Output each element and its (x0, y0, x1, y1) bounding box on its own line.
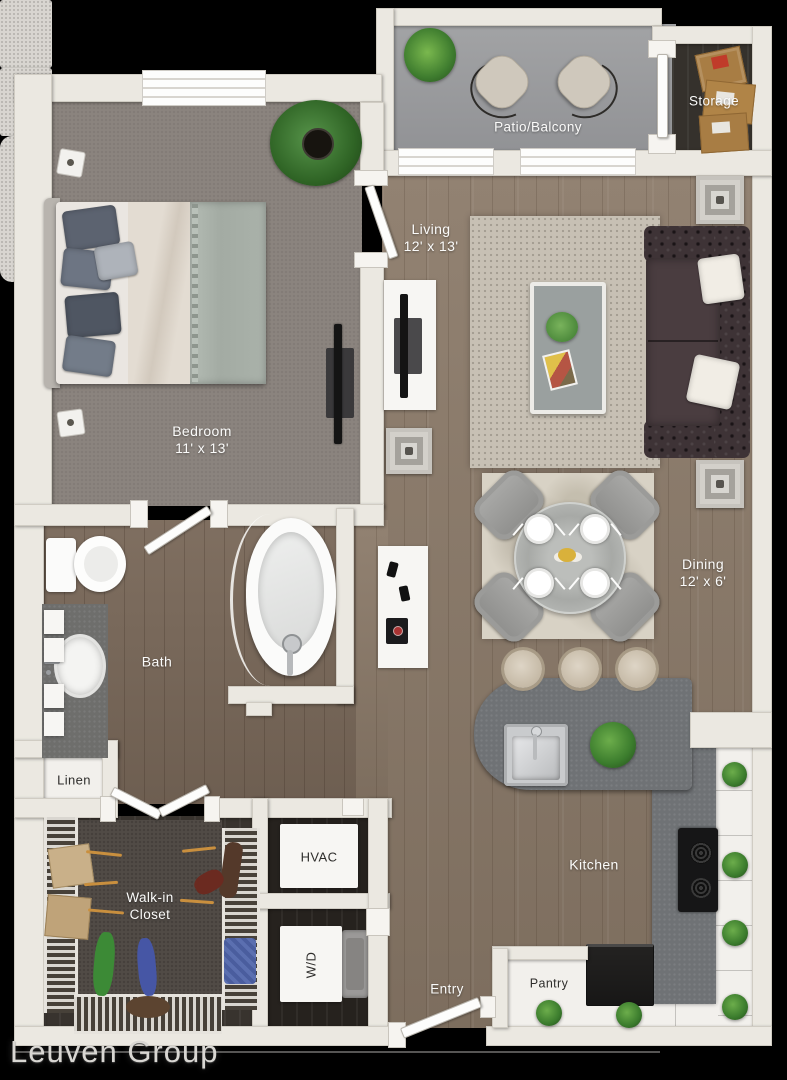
bedroom-door-jamb-bottom (354, 252, 388, 268)
nightstand-bottom-lamp-finial (67, 419, 74, 426)
vanity-drawer-1 (44, 610, 64, 634)
bed-pillow-3 (93, 241, 138, 281)
walkin-door-jamb-left (100, 796, 116, 822)
bed-sheet (128, 202, 192, 384)
bed-pillow-4 (64, 292, 121, 339)
sofa-seat-seam (648, 340, 718, 342)
patio-plant (404, 28, 456, 82)
vanity-drawer-3 (44, 684, 64, 708)
counter-plant-6 (722, 994, 748, 1020)
room-label-storage: Storage (689, 93, 739, 110)
room-label-living-name: Living (404, 221, 459, 238)
bedroom-window (142, 70, 266, 106)
counter-plant-5 (616, 1002, 642, 1028)
console-table (378, 546, 428, 668)
floor-plan: Patio/Balcony Storage Living 12' x 13' B… (0, 0, 787, 1080)
toilet-seat (84, 546, 118, 582)
counter-plant-1 (722, 762, 747, 787)
wall-kitchen-stub (690, 712, 772, 748)
storage-door (657, 54, 668, 138)
toilet-tank (46, 538, 76, 592)
console-item-3-detail (393, 626, 403, 636)
bar-stool-3 (618, 650, 656, 688)
refrigerator (586, 944, 654, 1006)
bath-door-jamb-right (210, 500, 228, 528)
storage-box-3-label (712, 121, 731, 133)
walkin-door-jamb-right (204, 796, 220, 822)
room-label-living: Living 12' x 13' (404, 221, 459, 255)
bed-pillow-5 (62, 335, 117, 378)
bedroom-door-jamb-top (354, 170, 388, 186)
counter-white-right (716, 746, 752, 1028)
wall-bottom-b (486, 1026, 772, 1046)
bedroom-plant-pot (302, 128, 334, 160)
room-label-living-dims: 12' x 13' (404, 238, 459, 255)
dining-plate-3 (524, 568, 554, 598)
room-label-entry: Entry (430, 981, 464, 998)
wall-left-lower (14, 520, 44, 1046)
washer-lid (346, 938, 364, 990)
side-table-top (696, 176, 744, 224)
room-label-pantry: Pantry (530, 976, 569, 993)
room-label-walkin: Walk-in Closet (126, 889, 173, 923)
vanity-drawer-2 (44, 638, 64, 662)
counter-plant-3 (722, 920, 748, 946)
stove-burner-2 (691, 878, 711, 898)
counter-plant-4 (536, 1000, 562, 1026)
room-label-bedroom-name: Bedroom (172, 423, 232, 440)
watermark-line (14, 1051, 660, 1053)
sofa-pillow-1 (697, 253, 745, 304)
bar-stool-1 (504, 650, 542, 688)
bed-duvet-buttons (192, 204, 198, 382)
wall-tub-right (336, 508, 354, 704)
room-label-patio: Patio/Balcony (494, 119, 582, 136)
wall-bedroom-right-b (360, 256, 384, 508)
closet-shirt (224, 938, 256, 984)
counter-plant-2 (722, 852, 748, 878)
room-label-linen: Linen (57, 772, 91, 789)
closet-bag (126, 996, 170, 1018)
wall-patio-top (376, 8, 662, 26)
wd-door-frame (366, 908, 390, 936)
room-label-kitchen: Kitchen (569, 857, 619, 874)
room-label-dining: Dining 12' x 6' (680, 556, 727, 590)
room-label-wd: W/D (303, 952, 320, 978)
patio-slider-right (520, 148, 636, 176)
hvac-door-frame (342, 798, 364, 816)
closet-box-2 (44, 894, 91, 940)
wall-walkin-top-a (14, 798, 106, 818)
room-label-bath: Bath (142, 654, 172, 671)
vanity-drawer-4 (44, 712, 64, 736)
living-tv-mount (394, 318, 422, 374)
side-table-tv (386, 428, 432, 474)
bath-faucet-knob-2 (46, 670, 51, 675)
entry-door-jamb-right (480, 996, 496, 1018)
dining-centerpiece (558, 548, 576, 562)
stove (678, 828, 718, 912)
coffee-table-plant (546, 312, 578, 342)
wall-bedroom-bottom-a (14, 504, 140, 526)
living-tv (400, 294, 408, 398)
dining-plate-2 (580, 514, 610, 544)
stove-burner-1 (690, 842, 712, 864)
island-plant (590, 722, 636, 768)
dining-plate-1 (524, 514, 554, 544)
wall-tub-stub (246, 702, 272, 716)
bedroom-tv (334, 324, 342, 444)
room-label-bedroom-dims: 11' x 13' (172, 440, 232, 457)
patio-slider-left (398, 148, 494, 176)
bath-door-jamb-left (130, 500, 148, 528)
storage-box-3 (699, 112, 750, 153)
wall-right-outer (752, 26, 772, 1046)
kitchen-faucet-neck (533, 734, 537, 760)
room-label-walkin-line1: Walk-in (126, 889, 173, 906)
bed-duvet (190, 202, 266, 384)
bar-stool-2 (561, 650, 599, 688)
wall-bedroom-right-a (360, 102, 384, 180)
room-label-hvac: HVAC (301, 849, 338, 866)
nightstand-top (0, 0, 52, 68)
nightstand-top-lamp-finial (67, 159, 74, 166)
room-label-walkin-line2: Closet (126, 906, 173, 923)
coffee-table (530, 282, 606, 414)
side-table-bottom (696, 460, 744, 508)
dining-plate-4 (580, 568, 610, 598)
room-label-dining-dims: 12' x 6' (680, 573, 727, 590)
room-label-dining-name: Dining (680, 556, 727, 573)
sofa-pillow-2 (686, 354, 741, 411)
room-label-bedroom: Bedroom 11' x 13' (172, 423, 232, 457)
